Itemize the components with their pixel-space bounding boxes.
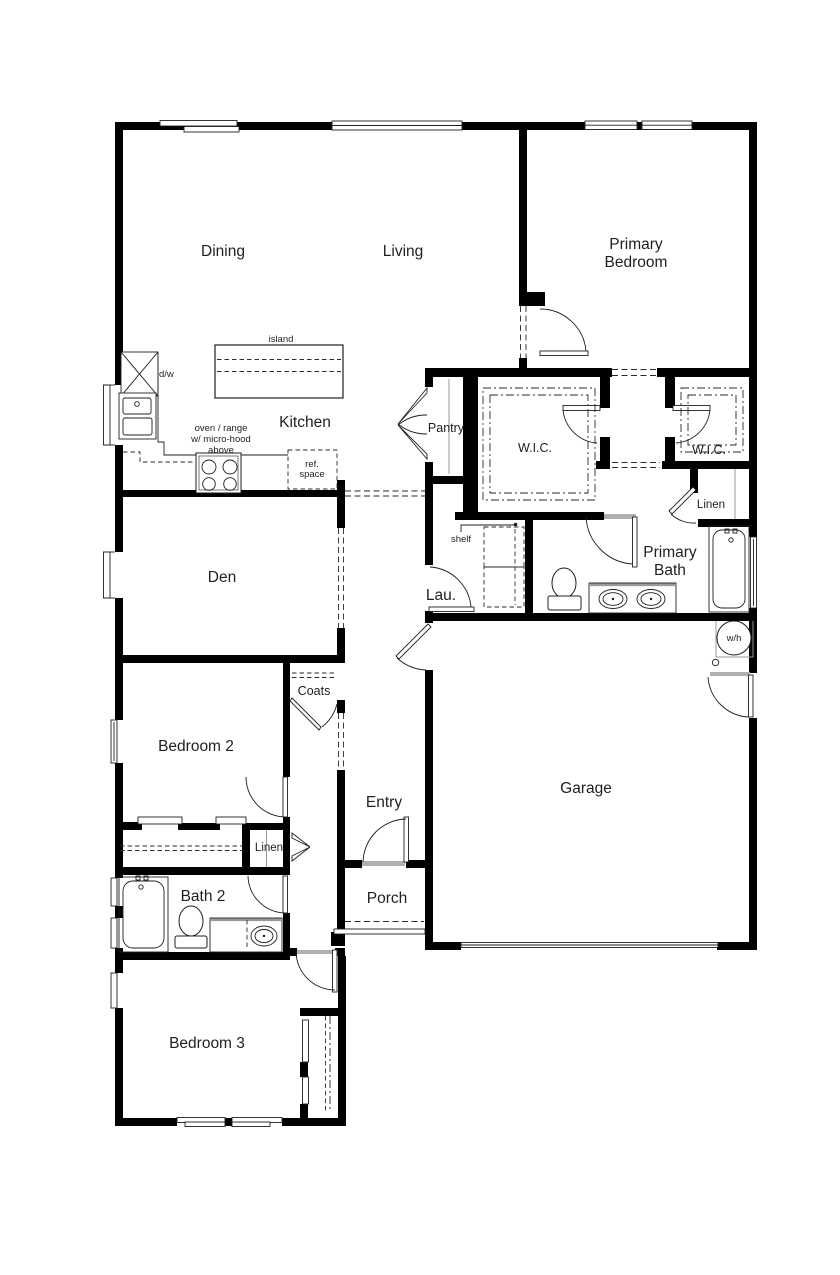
room-label-den: Den [208,569,236,586]
room-label-bedroom2: Bedroom 2 [158,738,234,755]
range-note-line1: oven / range [195,423,248,434]
room-label-dining: Dining [201,243,245,260]
range-stove [196,453,241,493]
room-label-wic-left: W.I.C. [518,441,552,455]
coats-shelf [292,673,337,678]
den-window [103,552,115,598]
bath2-vanity [210,918,282,952]
bedroom2-closet [120,817,246,851]
bedroom3-door [296,950,337,992]
doors [246,309,753,992]
entry-door [362,817,409,866]
room-label-linen-hall: Linen [255,842,283,854]
room-label-wic-right: W.I.C. [692,443,726,457]
fixtures [119,345,753,1112]
bath2-tub [119,876,168,952]
garage-service-door [708,672,753,717]
windows [103,121,757,1127]
porch-edge [334,922,425,935]
range-note-line2: w/ micro-hood [190,434,251,445]
coats-door [290,698,337,730]
wic-right-door [673,406,710,444]
island-label: island [269,334,294,345]
room-label-living: Living [383,243,424,260]
primary-toilet [548,568,581,610]
bedroom2-window [111,720,117,763]
dishwasher-label: d/w [159,369,174,380]
exterior-walls [115,122,757,1126]
room-label-linen-primary: Linen [697,499,725,511]
room-label-laundry: Lau. [426,587,456,604]
room-label-coats: Coats [298,684,331,698]
room-label-primary-bath-line1: Primary [643,544,697,561]
room-label-garage: Garage [560,780,612,797]
room-label-pantry: Pantry [428,421,465,435]
pantry-double-door [398,388,427,459]
room-label-entry: Entry [366,794,402,811]
garage-door-opening [461,943,718,948]
floor-plan-drawing: Dining Living Primary Bedroom Kitchen is… [0,0,840,1275]
bath2-toilet [175,906,207,948]
primary-bedroom-door [540,309,588,356]
room-label-bedroom3: Bedroom 3 [169,1035,245,1052]
primary-tub [709,526,749,612]
primary-bath-door [586,514,637,567]
room-label-porch: Porch [367,890,408,907]
living-window [332,121,462,130]
room-label-kitchen: Kitchen [279,414,331,431]
dishwasher [121,352,158,396]
bedroom2-door [246,777,288,817]
room-label-primary-bedroom-line2: Bedroom [605,254,668,271]
ref-space-line2: space [299,469,324,480]
room-label-primary-bath-line2: Bath [654,562,686,579]
water-heater-label: w/h [726,633,742,644]
dining-window [160,121,239,133]
kitchen-sink [119,393,156,439]
room-label-primary-bedroom-line1: Primary [609,236,663,253]
floor-plan: Dining Living Primary Bedroom Kitchen is… [0,0,840,1275]
primary-vanity [589,583,676,613]
wic-left-door [563,406,600,444]
room-label-bath2: Bath 2 [181,888,226,905]
bath2-door [248,876,288,913]
kitchen-island [215,345,343,398]
range-note-line3: above [208,445,234,456]
kitchen-window [103,385,115,445]
linen-hall-door [292,833,310,861]
linen-primary-door [669,487,696,523]
bedroom3-left-window [111,973,117,1008]
tub-window [751,537,757,608]
interior-walls [115,130,757,1118]
washer-dryer [484,527,524,607]
shelf-label: shelf [451,534,471,545]
garage-entry-door [396,624,431,670]
